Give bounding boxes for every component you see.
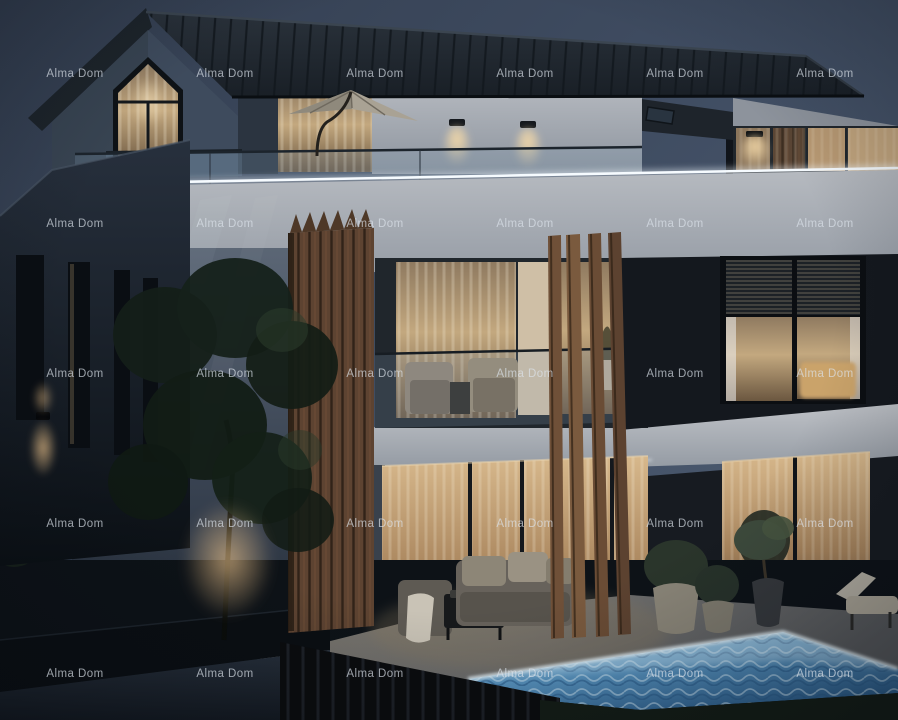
property-photo: Alma DomAlma DomAlma DomAlma DomAlma Dom…	[0, 0, 898, 720]
scene-render	[0, 0, 898, 720]
vignette	[0, 0, 898, 720]
